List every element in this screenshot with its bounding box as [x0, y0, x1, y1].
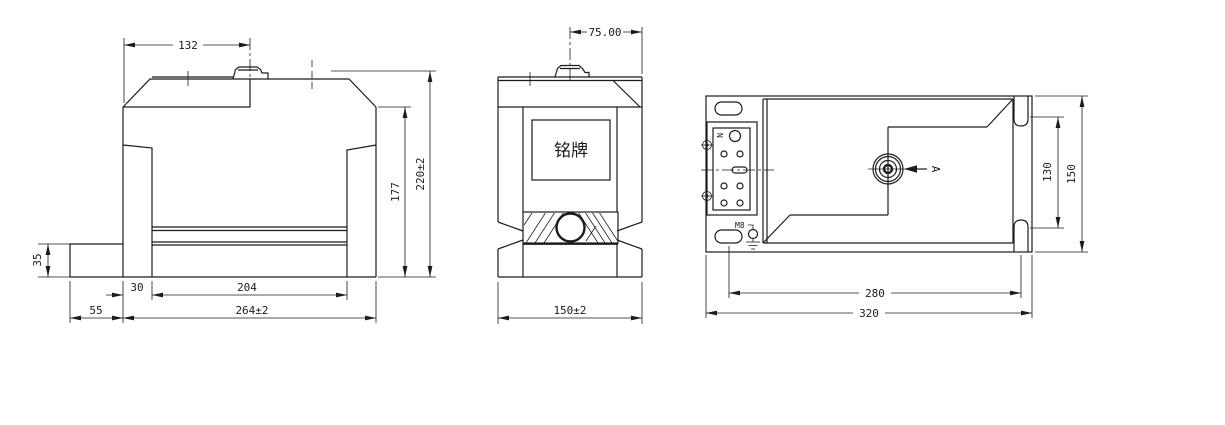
front-rails: [152, 227, 347, 245]
mounting-notch-top-right: [1014, 96, 1028, 126]
dim-150-label: 150: [1065, 164, 1078, 184]
dim-220-label: 220±2: [414, 157, 427, 190]
mounting-notch-bottom-right: [1014, 220, 1028, 252]
nameplate-text: 铭牌: [554, 141, 588, 161]
ground-symbol: [746, 242, 760, 249]
terminal-screw-bottom: [701, 190, 713, 202]
dim-132-label: 132: [178, 39, 198, 52]
terminal-n-label: N: [715, 133, 724, 138]
dim-75-label: 75.00: [588, 26, 621, 39]
front-top-panel: [123, 79, 250, 107]
view-arrow-a: A: [904, 165, 942, 173]
dim-130-label: 130: [1041, 162, 1054, 182]
dim-150pm-label: 150±2: [553, 304, 586, 317]
view-arrow-a-label: A: [929, 166, 942, 173]
dim-264-label: 264±2: [235, 304, 268, 317]
mounting-slot-bottom-left: [715, 230, 742, 243]
side-band-diagonal: [613, 81, 640, 108]
dim-30-label: 30: [130, 281, 143, 294]
ground-terminal: M8: [735, 221, 760, 249]
front-left-leg-inner: [123, 145, 152, 277]
side-notches: [498, 222, 642, 249]
front-dimensions: 132 35 30 204 55 264±2 177: [31, 38, 436, 323]
dim-280-label: 280: [865, 287, 885, 300]
nameplate: 铭牌: [532, 120, 610, 180]
front-terminal-knob: [233, 38, 268, 81]
mounting-slot-top-left: [715, 102, 742, 115]
dim-35-label: 35: [31, 253, 44, 266]
technical-drawing-canvas: 132 35 30 204 55 264±2 177: [0, 0, 1225, 425]
side-terminal-knob: [555, 27, 589, 82]
front-left-ledge: [70, 244, 123, 277]
side-clamp-band: [522, 209, 621, 246]
side-primary-hole: [557, 214, 585, 242]
dim-55-label: 55: [89, 304, 102, 317]
top-base-plate: [706, 96, 1032, 252]
dim-177-label: 177: [389, 182, 402, 202]
dim-320-label: 320: [859, 307, 879, 320]
side-view: 铭牌 75.00 150±2: [498, 26, 642, 324]
front-right-leg-inner: [347, 145, 376, 277]
terminal-screw-top: [701, 139, 713, 151]
dim-204-label: 204: [237, 281, 257, 294]
top-center-boss: [868, 149, 908, 189]
ground-m8-label: M8: [735, 221, 745, 230]
top-view: A N: [701, 96, 1088, 320]
front-view: 132 35 30 204 55 264±2 177: [31, 38, 436, 323]
